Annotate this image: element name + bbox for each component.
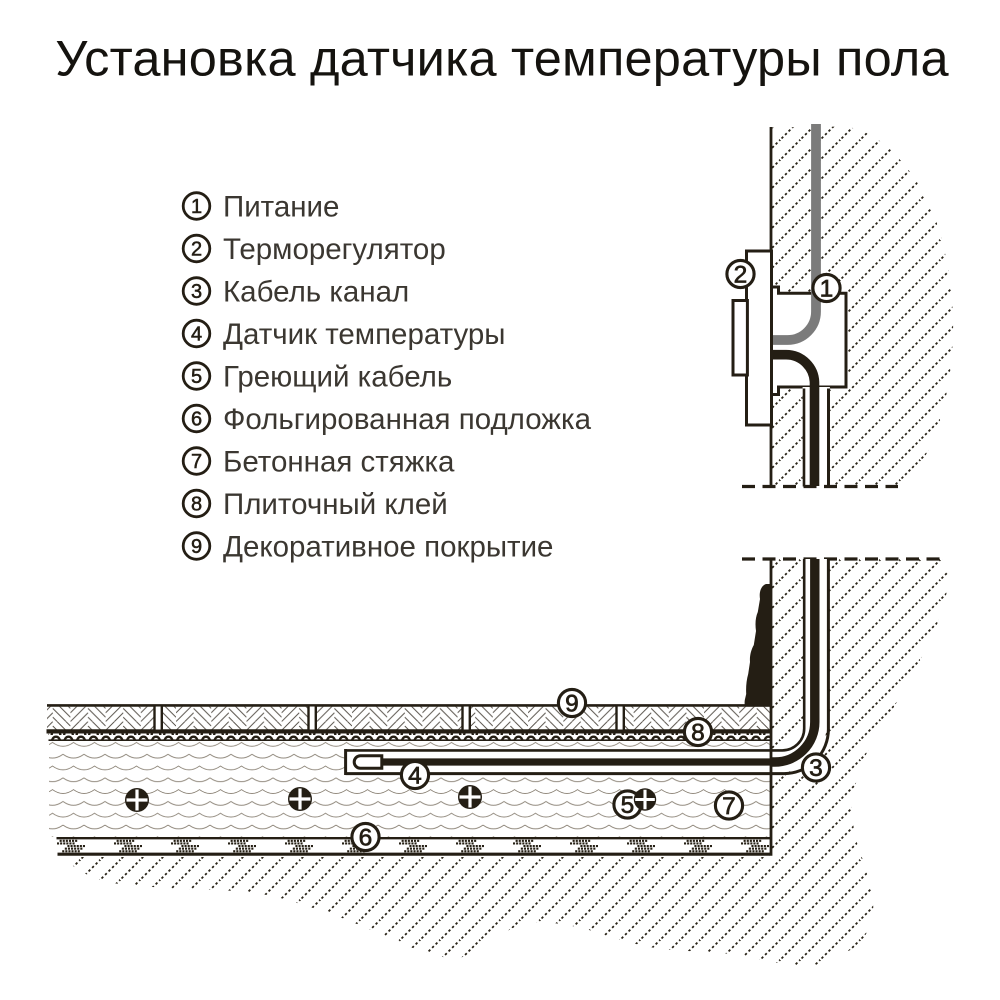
svg-text:1: 1 [191, 196, 202, 218]
svg-text:4: 4 [408, 763, 422, 790]
svg-text:Греющий кабель: Греющий кабель [223, 361, 452, 394]
svg-text:Датчик температуры: Датчик температуры [223, 318, 505, 351]
svg-text:8: 8 [191, 494, 202, 516]
svg-text:5: 5 [621, 792, 635, 819]
svg-text:Декоративное покрытие: Декоративное покрытие [223, 531, 553, 564]
svg-text:Фольгированная подложка: Фольгированная подложка [223, 403, 592, 436]
svg-text:6: 6 [191, 409, 202, 431]
svg-text:9: 9 [191, 536, 202, 558]
svg-text:6: 6 [359, 825, 373, 852]
svg-text:7: 7 [722, 793, 736, 820]
svg-text:Установка датчика температуры: Установка датчика температуры пола [55, 30, 949, 87]
svg-text:Бетонная стяжка: Бетонная стяжка [223, 446, 455, 479]
svg-text:2: 2 [191, 239, 202, 261]
svg-text:3: 3 [191, 281, 202, 303]
svg-text:2: 2 [734, 262, 748, 289]
svg-text:9: 9 [565, 691, 579, 718]
svg-text:1: 1 [820, 276, 834, 303]
svg-text:Плиточный клей: Плиточный клей [223, 488, 448, 521]
svg-text:Терморегулятор: Терморегулятор [223, 233, 446, 266]
svg-text:3: 3 [809, 755, 823, 782]
svg-text:7: 7 [191, 451, 202, 473]
svg-text:Питание: Питание [223, 191, 339, 224]
svg-text:Кабель канал: Кабель канал [223, 276, 409, 309]
svg-text:5: 5 [191, 366, 202, 388]
svg-text:4: 4 [191, 324, 202, 346]
svg-text:8: 8 [691, 720, 705, 747]
